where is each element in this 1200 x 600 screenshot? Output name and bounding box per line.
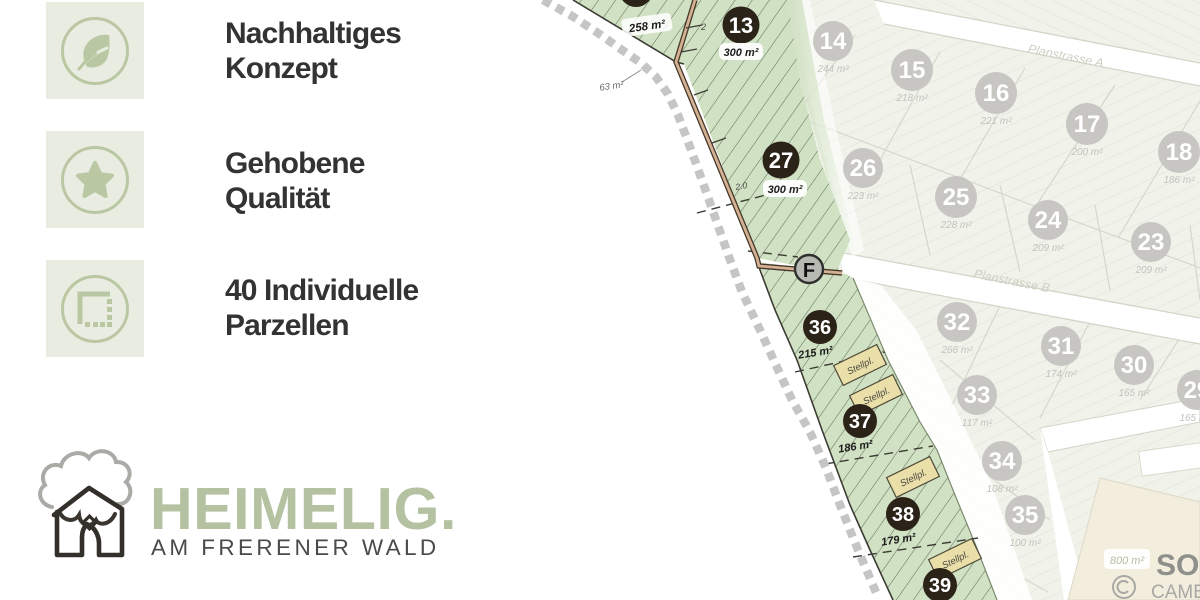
svg-text:17: 17: [1074, 111, 1101, 138]
svg-text:63 m²: 63 m²: [599, 79, 625, 93]
svg-text:266 m²: 266 m²: [940, 345, 973, 356]
svg-text:209 m²: 209 m²: [1134, 265, 1167, 276]
svg-text:2: 2: [700, 22, 706, 32]
svg-text:14: 14: [820, 28, 847, 55]
svg-text:174 m²: 174 m²: [1045, 369, 1077, 380]
svg-text:800 m²: 800 m²: [1110, 555, 1145, 567]
svg-text:15: 15: [899, 57, 926, 84]
svg-text:117 m²: 117 m²: [962, 418, 993, 429]
svg-text:39: 39: [929, 575, 951, 597]
svg-text:228 m²: 228 m²: [939, 220, 972, 231]
svg-text:300 m²: 300 m²: [724, 47, 759, 59]
svg-text:108 m²: 108 m²: [986, 484, 1018, 495]
svg-text:31: 31: [1048, 333, 1075, 360]
svg-text:100 m²: 100 m²: [1009, 538, 1041, 549]
svg-text:32: 32: [944, 309, 971, 336]
svg-text:18: 18: [1166, 139, 1193, 166]
svg-text:16: 16: [983, 80, 1010, 107]
svg-text:27: 27: [769, 148, 793, 173]
svg-text:200 m²: 200 m²: [1070, 147, 1103, 158]
svg-text:38: 38: [892, 504, 914, 526]
svg-text:25: 25: [943, 184, 970, 211]
svg-text:218 m²: 218 m²: [895, 93, 928, 104]
svg-text:33: 33: [964, 382, 991, 409]
svg-text:186 m²: 186 m²: [1163, 175, 1195, 186]
svg-text:SO: SO: [1156, 549, 1199, 582]
svg-text:30: 30: [1121, 352, 1148, 379]
svg-text:37: 37: [849, 411, 871, 433]
svg-text:221 m²: 221 m²: [979, 116, 1012, 127]
svg-text:13: 13: [729, 13, 753, 38]
svg-text:209 m²: 209 m²: [1031, 243, 1064, 254]
svg-text:244 m²: 244 m²: [816, 64, 849, 75]
svg-text:CAMB: CAMB: [1151, 582, 1200, 600]
svg-text:34: 34: [989, 448, 1016, 475]
svg-text:165 m²: 165 m²: [1179, 413, 1200, 424]
svg-text:26: 26: [850, 155, 877, 182]
svg-text:F: F: [803, 260, 815, 282]
svg-text:23: 23: [1138, 229, 1165, 256]
svg-text:24: 24: [1035, 207, 1062, 234]
svg-text:29: 29: [1184, 377, 1200, 404]
svg-text:35: 35: [1012, 502, 1039, 529]
svg-text:36: 36: [809, 317, 831, 339]
svg-text:223 m²: 223 m²: [846, 191, 879, 202]
svg-text:300 m²: 300 m²: [768, 184, 803, 196]
svg-text:165 m²: 165 m²: [1118, 388, 1150, 399]
